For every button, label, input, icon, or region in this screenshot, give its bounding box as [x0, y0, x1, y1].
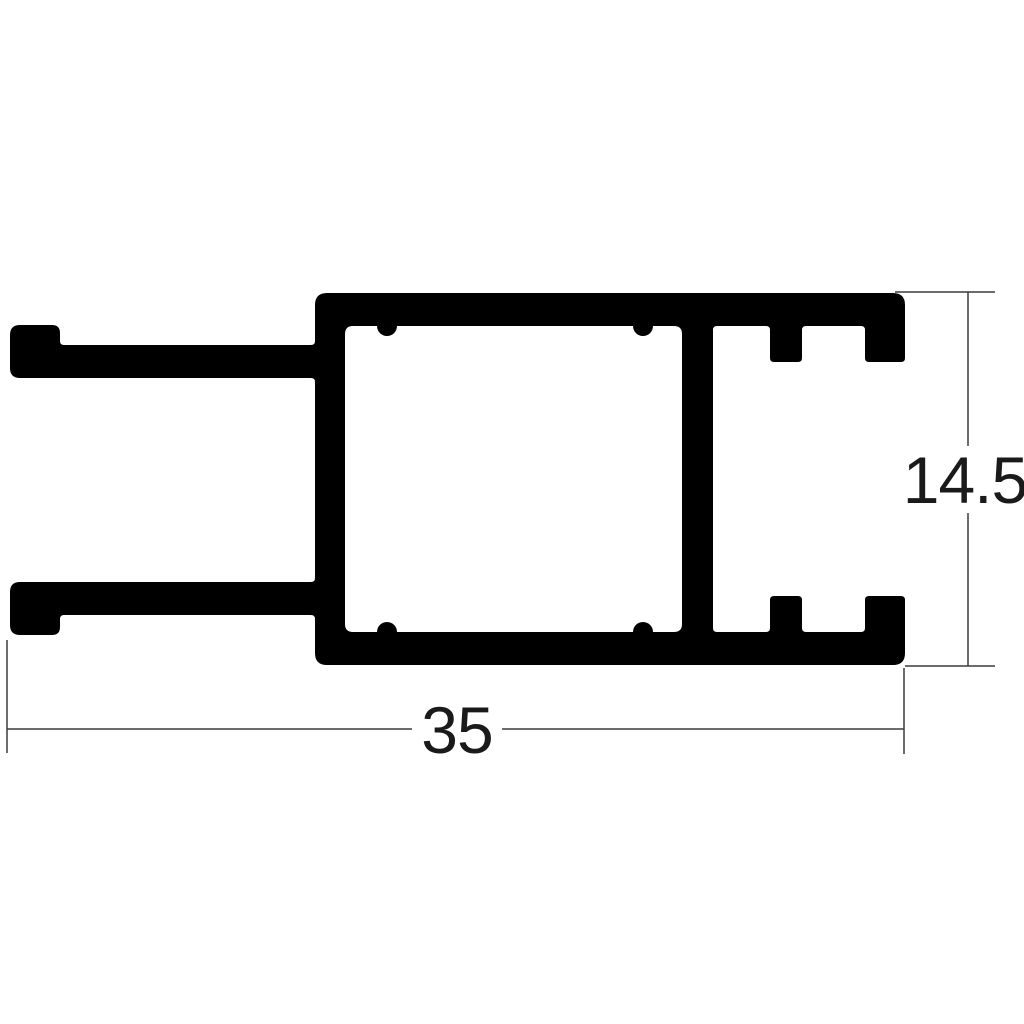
height-dimension-label: 14.5: [903, 443, 1024, 517]
dimension-labels: 35 14.5: [421, 443, 1024, 767]
profile-cross-section: [10, 293, 905, 665]
technical-drawing: 35 14.5: [0, 0, 1024, 1024]
drawing-canvas: 35 14.5: [0, 0, 1024, 1024]
width-dimension-label: 35: [421, 693, 492, 767]
